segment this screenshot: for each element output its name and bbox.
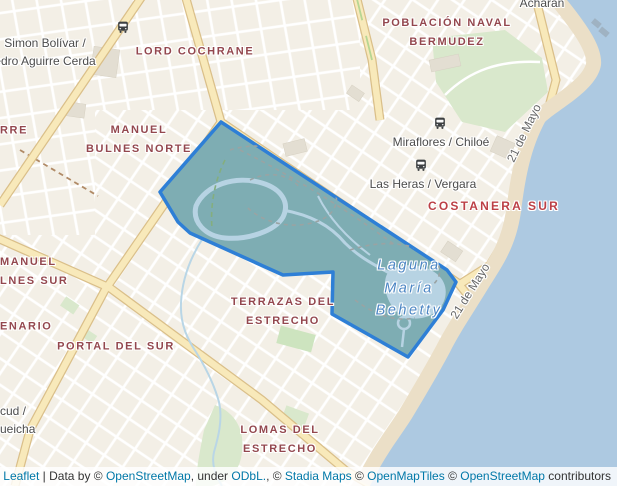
attribution-text: contributors xyxy=(545,469,611,483)
map-viewport[interactable]: LORD COCHRANEPOBLACIÓN NAVALBERMUDEZMANU… xyxy=(0,0,617,486)
attribution-link-leaflet[interactable]: Leaflet xyxy=(3,469,39,483)
attribution-link-openmaptiles[interactable]: OpenMapTiles xyxy=(367,469,445,483)
attribution-link-odbl[interactable]: ODbL. xyxy=(231,469,266,483)
attribution-link-openstreetmap-2[interactable]: OpenStreetMap xyxy=(460,469,545,483)
attribution-link-openstreetmap-1[interactable]: OpenStreetMap xyxy=(106,469,191,483)
attribution-text: , under xyxy=(191,469,232,483)
attribution-text: © xyxy=(352,469,368,483)
attribution-text: | Data by © xyxy=(39,469,106,483)
attribution-text: © xyxy=(445,469,461,483)
attribution-text: , © xyxy=(266,469,285,483)
attribution-bar: Leaflet | Data by © OpenStreetMap, under… xyxy=(0,467,617,486)
map-tiles xyxy=(0,0,617,486)
attribution-link-stadia-maps[interactable]: Stadia Maps xyxy=(285,469,352,483)
